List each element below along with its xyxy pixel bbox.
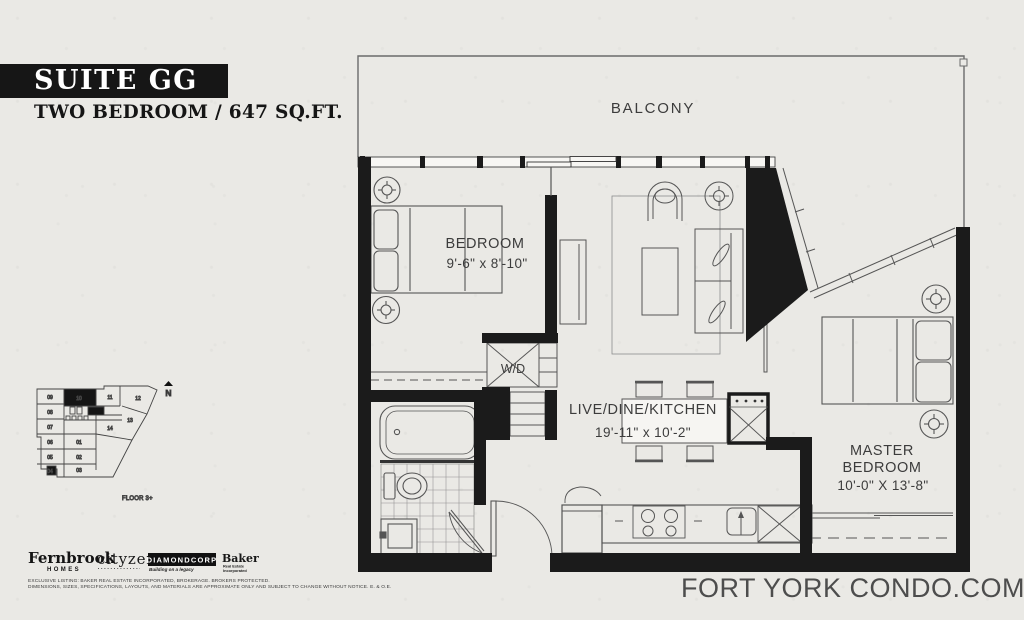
svg-text:10: 10 bbox=[76, 396, 82, 402]
svg-text:02: 02 bbox=[76, 455, 82, 461]
bathroom-sink bbox=[380, 519, 417, 554]
balcony-slider-panel bbox=[570, 157, 616, 162]
bedroom-dims: 9'-6" x 8'-10" bbox=[446, 256, 527, 271]
keyplan-floor-label: FLOOR 3+ bbox=[122, 496, 153, 502]
entry-door bbox=[491, 501, 552, 556]
svg-text:04: 04 bbox=[47, 469, 53, 475]
area-rug bbox=[612, 196, 720, 354]
svg-text:08: 08 bbox=[47, 410, 53, 416]
master-bedroom bbox=[810, 285, 953, 538]
diamondcorp-logo: DIAMONDCORP Building on a legacy bbox=[147, 553, 218, 572]
floorplan-drawing: BALCONY bbox=[0, 0, 1024, 620]
bedroom bbox=[371, 177, 502, 380]
bedroom-label: BEDROOM bbox=[445, 236, 524, 252]
svg-text:09: 09 bbox=[47, 395, 53, 401]
pillow bbox=[916, 321, 951, 360]
washer-dryer-label: W/D bbox=[501, 362, 525, 376]
pantry-cabinet bbox=[729, 394, 768, 443]
tv-console bbox=[560, 240, 586, 324]
svg-text:03: 03 bbox=[76, 468, 82, 474]
flyer-canvas: SUITE GG TWO BEDROOM / 647 SQ.FT. BALCON… bbox=[0, 0, 1024, 620]
bathroom-door bbox=[449, 510, 484, 553]
stove bbox=[633, 506, 685, 538]
svg-text:01: 01 bbox=[76, 440, 82, 446]
website-watermark: FORT YORK CONDO.COM bbox=[681, 573, 1024, 604]
keyplan: 09 10 11 12 08 13 07 14 06 01 05 02 04 0… bbox=[37, 381, 173, 502]
svg-text:05: 05 bbox=[47, 455, 53, 461]
disclaimer-line-1: EXCLUSIVE LISTING: BAKER REAL ESTATE INC… bbox=[28, 578, 270, 584]
svg-text:06: 06 bbox=[47, 440, 53, 446]
kitchen-sink bbox=[727, 508, 756, 535]
developer-logos: Fernbrook HOMES cityzen DIAMONDCORP Buil… bbox=[28, 549, 259, 573]
armchair bbox=[648, 182, 682, 221]
balcony-slider-panel bbox=[527, 162, 571, 167]
pillow bbox=[916, 362, 951, 402]
living-dims: 19'-11" x 10'-2" bbox=[595, 425, 691, 440]
bathroom bbox=[380, 406, 484, 556]
potlight-icon bbox=[922, 285, 950, 313]
master-closet bbox=[810, 513, 953, 538]
sofa bbox=[695, 229, 743, 333]
master-dims: 10'-0" X 13'-8" bbox=[837, 478, 928, 493]
angled-wall bbox=[746, 168, 808, 342]
svg-text:Building on a legacy: Building on a legacy bbox=[149, 567, 194, 572]
svg-text:DIAMONDCORP: DIAMONDCORP bbox=[147, 556, 218, 565]
balcony-label: BALCONY bbox=[611, 100, 695, 117]
master-label-2: BEDROOM bbox=[842, 460, 921, 476]
angled-windows bbox=[783, 168, 959, 298]
svg-text:13: 13 bbox=[127, 418, 133, 424]
pillow bbox=[374, 251, 398, 291]
refrigerator bbox=[562, 487, 602, 553]
balcony: BALCONY bbox=[358, 56, 967, 227]
toilet bbox=[384, 473, 427, 499]
potlight-icon bbox=[373, 297, 400, 324]
potlight-icon bbox=[374, 177, 400, 203]
disclaimer-line-2: DIMENSIONS, SIZES, SPECIFICATIONS, LAYOU… bbox=[28, 584, 391, 590]
potlight-icon bbox=[920, 410, 948, 438]
svg-text:12: 12 bbox=[135, 396, 141, 402]
dishwasher bbox=[758, 506, 801, 542]
north-arrow-icon: N bbox=[164, 381, 173, 398]
svg-text:N: N bbox=[165, 388, 171, 398]
coffee-table bbox=[642, 248, 678, 315]
kitchen-counter bbox=[602, 505, 812, 543]
svg-text:07: 07 bbox=[47, 425, 53, 431]
living-room bbox=[560, 182, 767, 461]
pillow bbox=[374, 210, 398, 249]
svg-text:HOMES: HOMES bbox=[47, 567, 81, 573]
walls bbox=[358, 157, 970, 572]
svg-text:11: 11 bbox=[107, 395, 112, 401]
svg-text:14: 14 bbox=[107, 426, 113, 432]
window-wall-top bbox=[358, 156, 775, 168]
baker-logo: Baker Real Estate Incorporated bbox=[222, 552, 259, 573]
svg-text:Incorporated: Incorporated bbox=[223, 568, 247, 573]
living-label: LIVE/DINE/KITCHEN bbox=[569, 402, 717, 418]
master-label-1: MASTER bbox=[850, 443, 914, 459]
